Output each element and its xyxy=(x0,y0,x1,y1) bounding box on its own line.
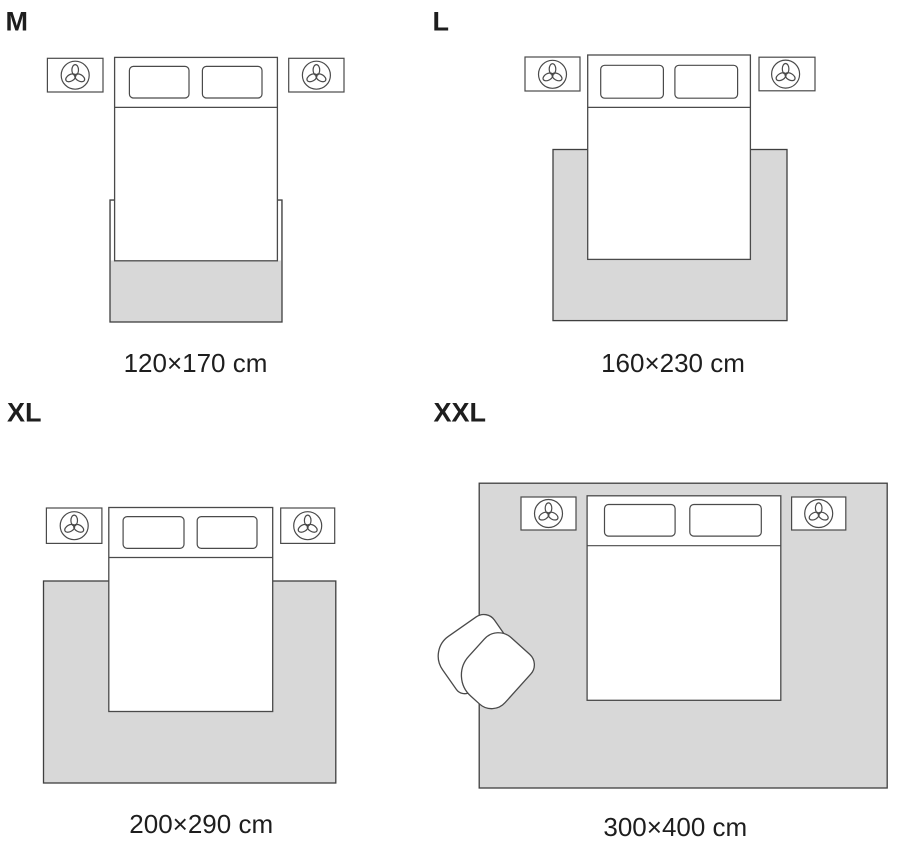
svg-text:200×290 cm: 200×290 cm xyxy=(129,809,273,839)
svg-text:XL: XL xyxy=(7,398,42,428)
svg-text:XXL: XXL xyxy=(434,398,487,428)
svg-text:M: M xyxy=(6,7,29,37)
svg-text:120×170 cm: 120×170 cm xyxy=(124,348,268,378)
svg-text:L: L xyxy=(433,7,450,37)
svg-text:160×230 cm: 160×230 cm xyxy=(601,348,745,378)
svg-text:300×400 cm: 300×400 cm xyxy=(603,812,747,842)
